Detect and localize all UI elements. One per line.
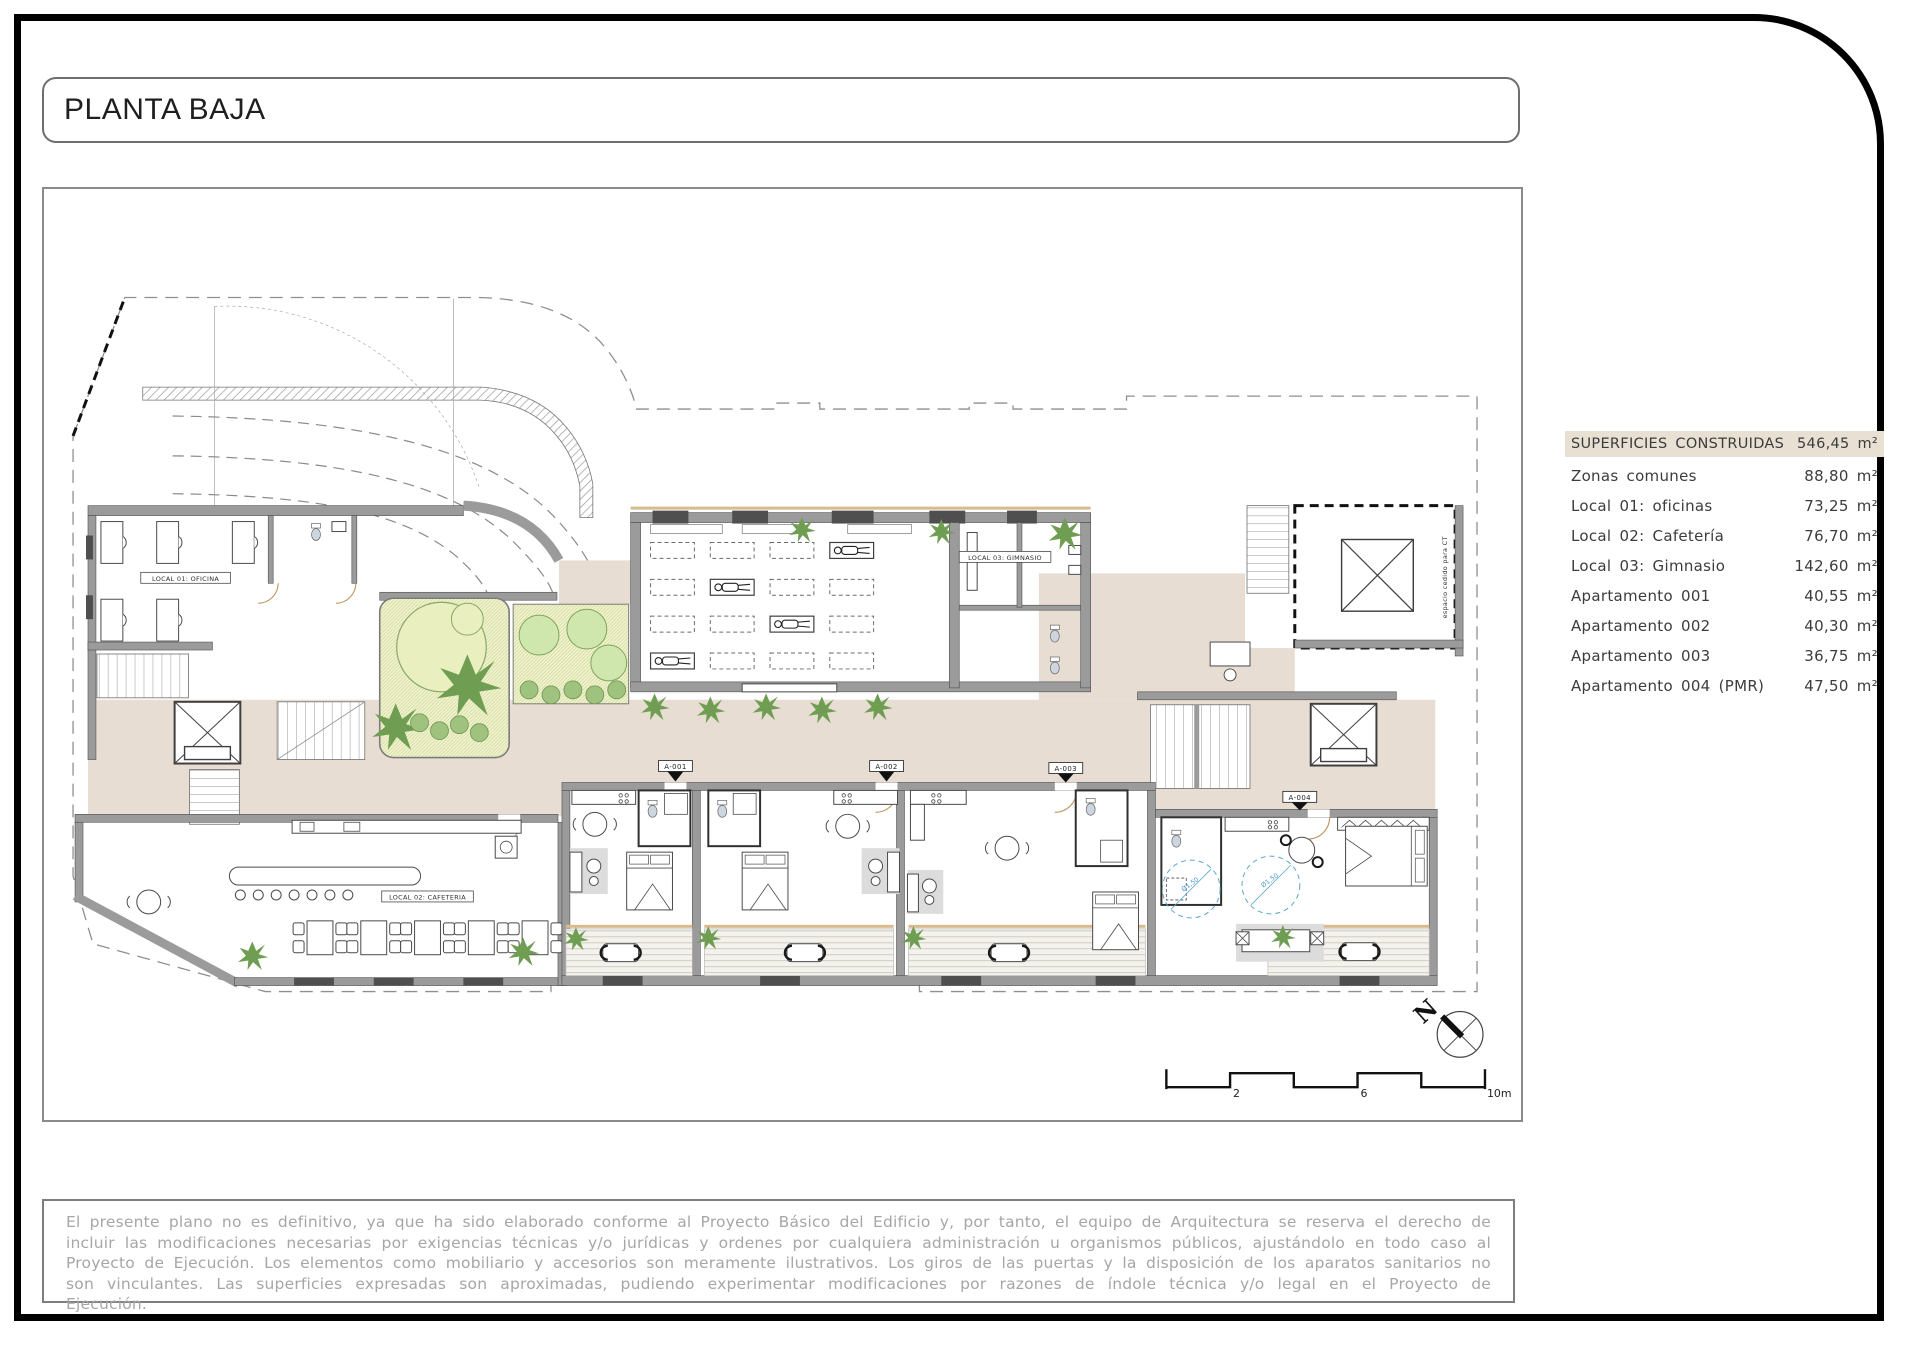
reception-desk [1210,642,1250,666]
row-value: 73,25 m² [1804,497,1878,515]
label-local02: LOCAL 02: CAFETERIA [389,893,466,901]
floor-plan-drawing: LOCAL 01: OFICINA [44,189,1521,1120]
table-row: Local 01: oficinas 73,25 m² [1571,491,1878,521]
table-row: Local 02: Cafetería 76,70 m² [1571,521,1878,551]
row-value: 47,50 m² [1804,677,1878,695]
table-row: Local 03: Gimnasio 142,60 m² [1571,551,1878,581]
cafeteria-local02: LOCAL 02: CAFETERIA [75,814,566,985]
disclaimer: El presente plano no es definitivo, ya q… [42,1199,1515,1303]
row-value: 88,80 m² [1804,467,1878,485]
table-row: Apartamento 004 (PMR) 47,50 m² [1571,671,1878,701]
elevator [175,702,241,764]
staircase [1150,705,1250,789]
scale-tick-2: 2 [1233,1087,1240,1100]
title-box: PLANTA BAJA [42,77,1520,143]
areas-header-value: 546,45 m² [1797,436,1878,452]
elevator [1311,704,1377,766]
row-label: Local 03: Gimnasio [1571,557,1725,575]
page-title: PLANTA BAJA [64,93,266,127]
apartments: Ø1,50 Ø1,50 A-001 A-002 A-003 A-004 [562,761,1437,986]
svg-text:A-003: A-003 [1055,765,1077,773]
disclaimer-text: El presente plano no es definitivo, ya q… [66,1212,1491,1315]
row-value: 40,30 m² [1804,617,1878,635]
row-value: 76,70 m² [1804,527,1878,545]
label-north: N [1408,994,1443,1029]
label-local01: LOCAL 01: OFICINA [152,575,219,583]
scale-tick-6: 6 [1361,1087,1368,1100]
table-row: Apartamento 003 36,75 m² [1571,641,1878,671]
bathroom-pmr [1161,817,1221,905]
tree [519,615,559,655]
svg-text:A-001: A-001 [664,763,686,771]
staircase [97,654,189,698]
tree [567,609,607,649]
row-label: Zonas comunes [1571,467,1697,485]
row-value: 36,75 m² [1804,647,1878,665]
scale-tick-10: 10m [1487,1087,1512,1100]
areas-table: SUPERFICIES CONSTRUIDAS 546,45 m² Zonas … [1571,431,1878,701]
label-local03: LOCAL 03: GIMNASIO [968,554,1042,562]
table-row: Apartamento 001 40,55 m² [1571,581,1878,611]
staircase [1247,506,1289,594]
gym-local03: LOCAL 03: GIMNASIO [631,507,1091,724]
bar-counter [229,867,420,885]
bathroom [708,790,760,846]
svg-text:A-004: A-004 [1289,794,1312,802]
row-value: 142,60 m² [1794,557,1878,575]
row-label: Local 02: Cafetería [1571,527,1724,545]
table-row: Apartamento 002 40,30 m² [1571,611,1878,641]
row-label: Apartamento 003 [1571,647,1711,665]
row-label: Local 01: oficinas [1571,497,1713,515]
row-label: Apartamento 004 (PMR) [1571,677,1764,695]
north-compass: N [1408,994,1483,1057]
driveway-ramp [143,299,601,596]
row-label: Apartamento 002 [1571,617,1711,635]
label-ct: espacio cedido para CT [1441,536,1449,618]
row-label: Apartamento 001 [1571,587,1711,605]
bathroom [1076,790,1128,866]
ct-room: espacio cedido para CT [1247,506,1463,656]
areas-table-header: SUPERFICIES CONSTRUIDAS 546,45 m² [1565,431,1884,457]
scale-bar: 2 6 10m [1166,1069,1511,1100]
table-row: Zonas comunes 88,80 m² [1571,461,1878,491]
svg-text:A-002: A-002 [875,763,897,771]
row-value: 40,55 m² [1804,587,1878,605]
tree [591,645,627,681]
areas-header-label: SUPERFICIES CONSTRUIDAS [1571,436,1784,452]
floor-plan-container: LOCAL 01: OFICINA [42,187,1523,1122]
